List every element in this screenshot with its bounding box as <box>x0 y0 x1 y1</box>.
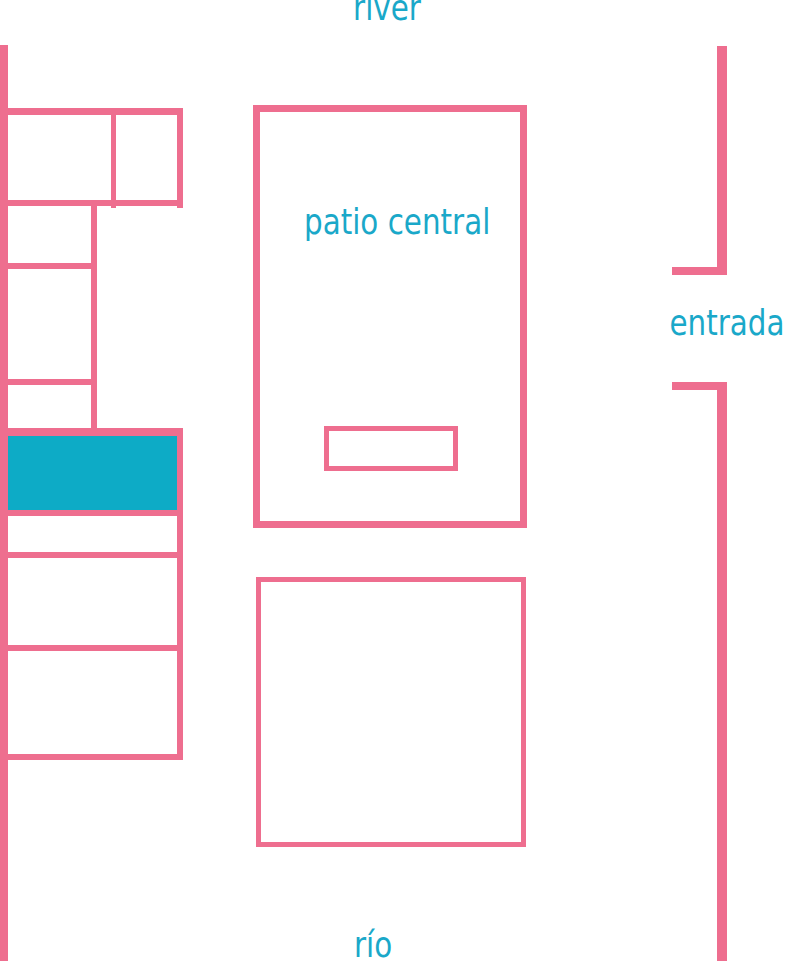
floor-plan: river patio central entrada río <box>0 0 785 961</box>
row3-bottom-wall <box>0 379 97 385</box>
entrance-upper-wall-foot <box>672 267 727 275</box>
bottom-square-room <box>256 577 526 847</box>
row1-divider-wall <box>111 108 116 208</box>
highlighted-room-bottom-wall <box>0 510 183 516</box>
lower-room-divider-wall-1 <box>0 552 183 558</box>
row1-top-wall <box>0 108 183 115</box>
entrance-label: entrada <box>643 303 785 343</box>
central-courtyard-label: patio central <box>304 202 472 242</box>
highlighted-room-top-wall <box>0 428 183 436</box>
river-label-top: river <box>303 0 471 28</box>
entrance-lower-wall <box>717 382 727 961</box>
lower-room-divider-wall-2 <box>0 645 183 651</box>
river-label-bottom: río <box>289 925 457 961</box>
lower-block-right-wall <box>177 428 183 760</box>
mid-vertical-wall <box>91 200 97 436</box>
courtyard-feature-rect <box>324 426 458 471</box>
highlighted-room <box>8 436 177 510</box>
entrance-upper-wall <box>717 46 727 275</box>
left-block-bottom-wall <box>0 754 183 760</box>
row1-right-wall <box>177 108 183 208</box>
row2-bottom-wall <box>0 263 97 269</box>
left-boundary-wall <box>0 45 8 961</box>
